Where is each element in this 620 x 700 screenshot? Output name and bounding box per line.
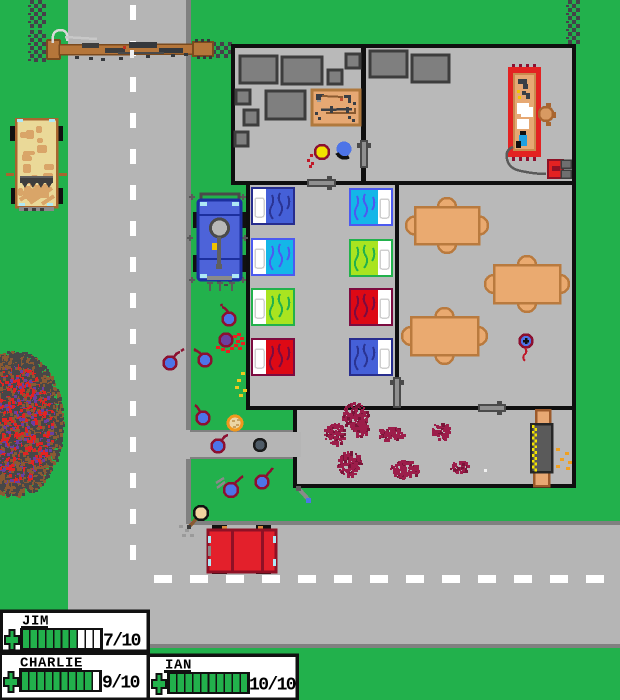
svg-text:7/10: 7/10 [103,632,141,652]
svg-text:9/10: 9/10 [102,674,140,694]
svg-text:10/10: 10/10 [249,676,296,696]
